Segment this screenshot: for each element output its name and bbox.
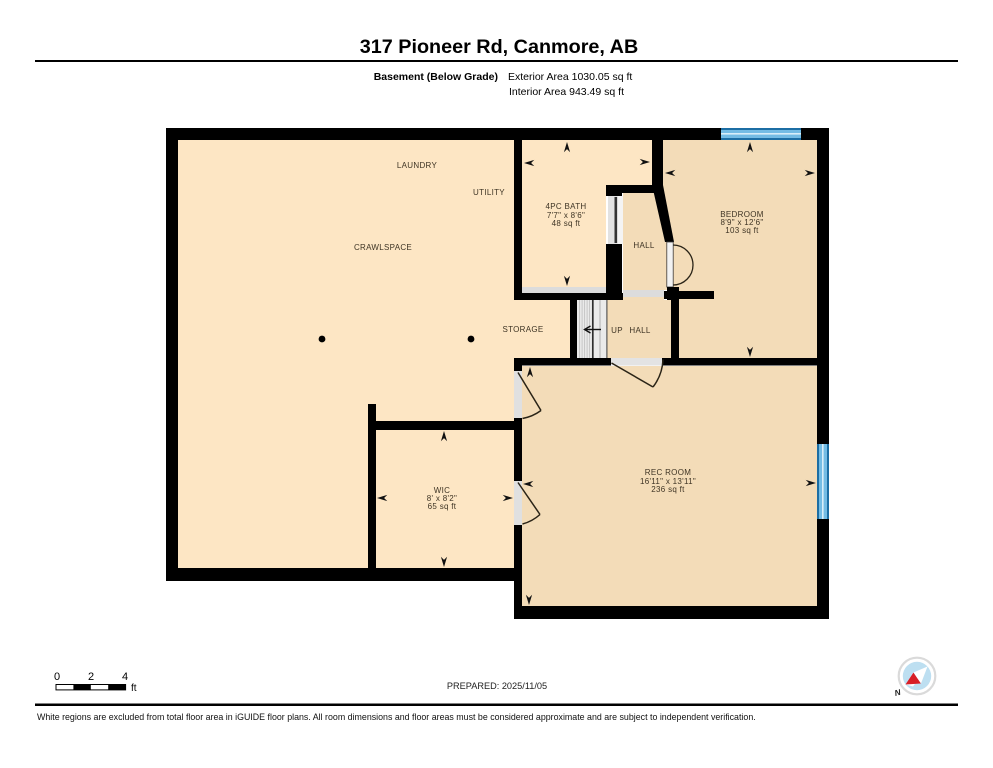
svg-text:Interior Area 943.49 sq ft: Interior Area 943.49 sq ft — [509, 86, 624, 98]
svg-text:103 sq ft: 103 sq ft — [725, 226, 759, 235]
svg-text:2: 2 — [88, 671, 94, 683]
svg-text:236 sq ft: 236 sq ft — [651, 485, 685, 494]
svg-text:N: N — [894, 688, 903, 698]
svg-text:ft: ft — [131, 683, 137, 694]
svg-text:UTILITY: UTILITY — [473, 188, 505, 197]
svg-text:65 sq ft: 65 sq ft — [428, 502, 457, 511]
svg-text:HALL: HALL — [633, 241, 654, 250]
svg-text:4: 4 — [122, 671, 128, 683]
svg-text:HALL: HALL — [629, 326, 650, 335]
svg-text:REC ROOM: REC ROOM — [645, 468, 691, 477]
svg-text:White regions are excluded fro: White regions are excluded from total fl… — [37, 712, 756, 722]
svg-text:STORAGE: STORAGE — [502, 325, 543, 334]
svg-text:48 sq ft: 48 sq ft — [552, 219, 581, 228]
svg-text:LAUNDRY: LAUNDRY — [397, 161, 438, 170]
svg-text:PREPARED: 2025/11/05: PREPARED: 2025/11/05 — [447, 681, 547, 691]
svg-text:Basement (Below Grade): Basement (Below Grade) — [374, 71, 498, 83]
svg-text:Exterior Area 1030.05 sq ft: Exterior Area 1030.05 sq ft — [508, 71, 632, 83]
svg-text:4PC BATH: 4PC BATH — [546, 202, 587, 211]
svg-text:0: 0 — [54, 671, 60, 683]
svg-text:317 Pioneer Rd, Canmore, AB: 317 Pioneer Rd, Canmore, AB — [360, 36, 638, 58]
svg-text:CRAWLSPACE: CRAWLSPACE — [354, 243, 412, 252]
svg-text:UP: UP — [611, 326, 623, 335]
